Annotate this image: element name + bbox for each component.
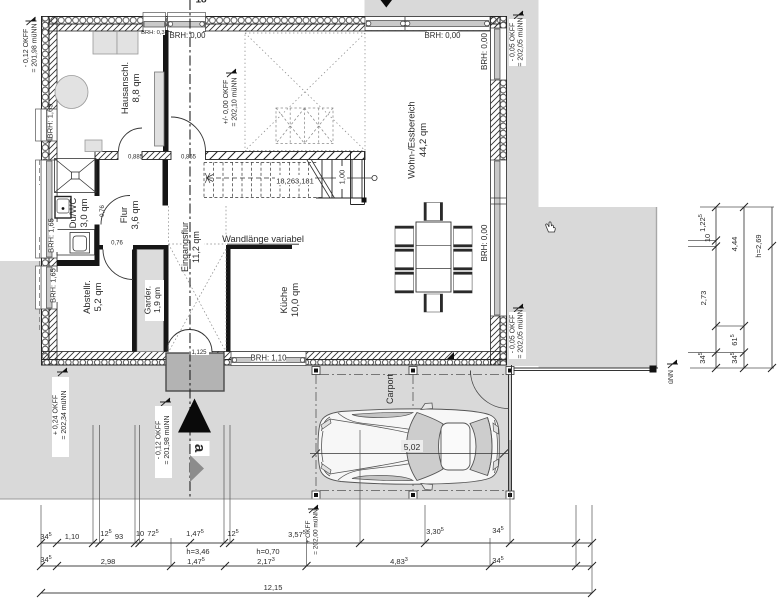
svg-text:93: 93 [115,532,123,541]
svg-text:Carport: Carport [385,373,395,404]
svg-text:11,2 qm: 11,2 qm [191,231,201,263]
svg-text:10: 10 [136,529,144,538]
svg-text:10,0 qm: 10,0 qm [290,283,301,317]
svg-text:1,10: 1,10 [65,532,80,541]
svg-text:1,9 qm: 1,9 qm [152,287,162,313]
svg-text:- 0,05 OKFF: - 0,05 OKFF [510,23,517,62]
svg-text:Garder.: Garder. [143,286,153,314]
svg-text:Flur: Flur [119,207,130,223]
svg-text:BRH: 0,00: BRH: 0,00 [425,31,462,40]
svg-text:2,73: 2,73 [699,291,708,306]
svg-text:BRH: 1,65: BRH: 1,65 [49,268,58,303]
svg-text:Abstellr.: Abstellr. [82,280,93,314]
svg-text:1,00: 1,00 [338,170,347,185]
svg-text:Eingangsflur: Eingangsflur [180,222,190,272]
svg-text:0,76: 0,76 [100,205,106,217]
svg-text:Küche: Küche [279,287,290,314]
svg-text:12,15: 12,15 [264,583,283,592]
svg-text:h=0,70: h=0,70 [256,547,279,556]
svg-text:+ OKFF: + OKFF [305,521,312,544]
svg-text:1,125: 1,125 [191,350,207,356]
svg-text:0,76: 0,76 [111,241,123,247]
svg-text:18: 18 [195,0,207,6]
svg-text:Wandlänge variabel: Wandlänge variabel [222,234,304,244]
svg-text:BRH: 0,00: BRH: 0,00 [170,31,207,40]
svg-text:= 202,00 müNN: = 202,00 müNN [313,509,320,555]
svg-text:- 0,12 OKFF: - 0,12 OKFF [23,29,30,68]
svg-text:3,6 qm: 3,6 qm [130,200,141,229]
svg-text:+ 0,24 OKFF: + 0,24 OKFF [53,395,60,435]
svg-text:BRH: 1,65: BRH: 1,65 [47,218,56,253]
svg-text:3,0 qm: 3,0 qm [79,198,90,227]
svg-text:= 202,10 müNN: = 202,10 müNN [232,77,239,126]
svg-text:2,98: 2,98 [101,557,116,566]
svg-text:0,885: 0,885 [128,155,144,161]
svg-text:5,2 qm: 5,2 qm [93,282,104,311]
svg-text:a: a [191,444,208,453]
svg-text:= 202,05 müNN: = 202,05 müNN [518,17,525,66]
svg-text:Hausanschl.: Hausanschl. [120,62,131,114]
svg-text:Du/WC: Du/WC [68,198,79,229]
svg-text:- 0,05 OKFF: - 0,05 OKFF [510,315,517,354]
svg-text:Wohn-/Essbereich: Wohn-/Essbereich [407,101,418,178]
svg-text:BRH: 1,10: BRH: 1,10 [251,354,288,363]
svg-text:BRH: 0,00: BRH: 0,00 [480,32,489,69]
svg-text:= 201,98 müNN: = 201,98 müNN [164,415,171,464]
svg-text:8,8 qm: 8,8 qm [131,73,142,102]
svg-text:= 202,05 müNN: = 202,05 müNN [518,309,525,358]
svg-text:h=3,46: h=3,46 [186,547,209,556]
svg-text:= 201,98 müNN: = 201,98 müNN [32,23,39,72]
svg-text:- 0,12 OKFF: - 0,12 OKFF [156,421,163,460]
svg-text:BRH: 0,35: BRH: 0,35 [141,30,168,36]
svg-text:üNN: üNN [668,370,675,384]
svg-text:= 202,34 müNN: = 202,34 müNN [61,390,68,439]
svg-text:44,2 qm: 44,2 qm [418,123,429,157]
svg-text:10: 10 [703,234,712,242]
svg-text:h=2,69: h=2,69 [754,234,763,257]
svg-text:18,263,181: 18,263,181 [276,177,314,186]
svg-text:BRH: 1,65: BRH: 1,65 [46,104,55,139]
svg-text:4,44: 4,44 [730,237,739,252]
svg-text:5,02: 5,02 [404,442,421,452]
svg-text:+/- 0,00 OKFF: +/- 0,00 OKFF [223,80,230,125]
svg-text:0,865: 0,865 [181,155,197,161]
svg-text:BRH: 0,00: BRH: 0,00 [480,224,489,261]
